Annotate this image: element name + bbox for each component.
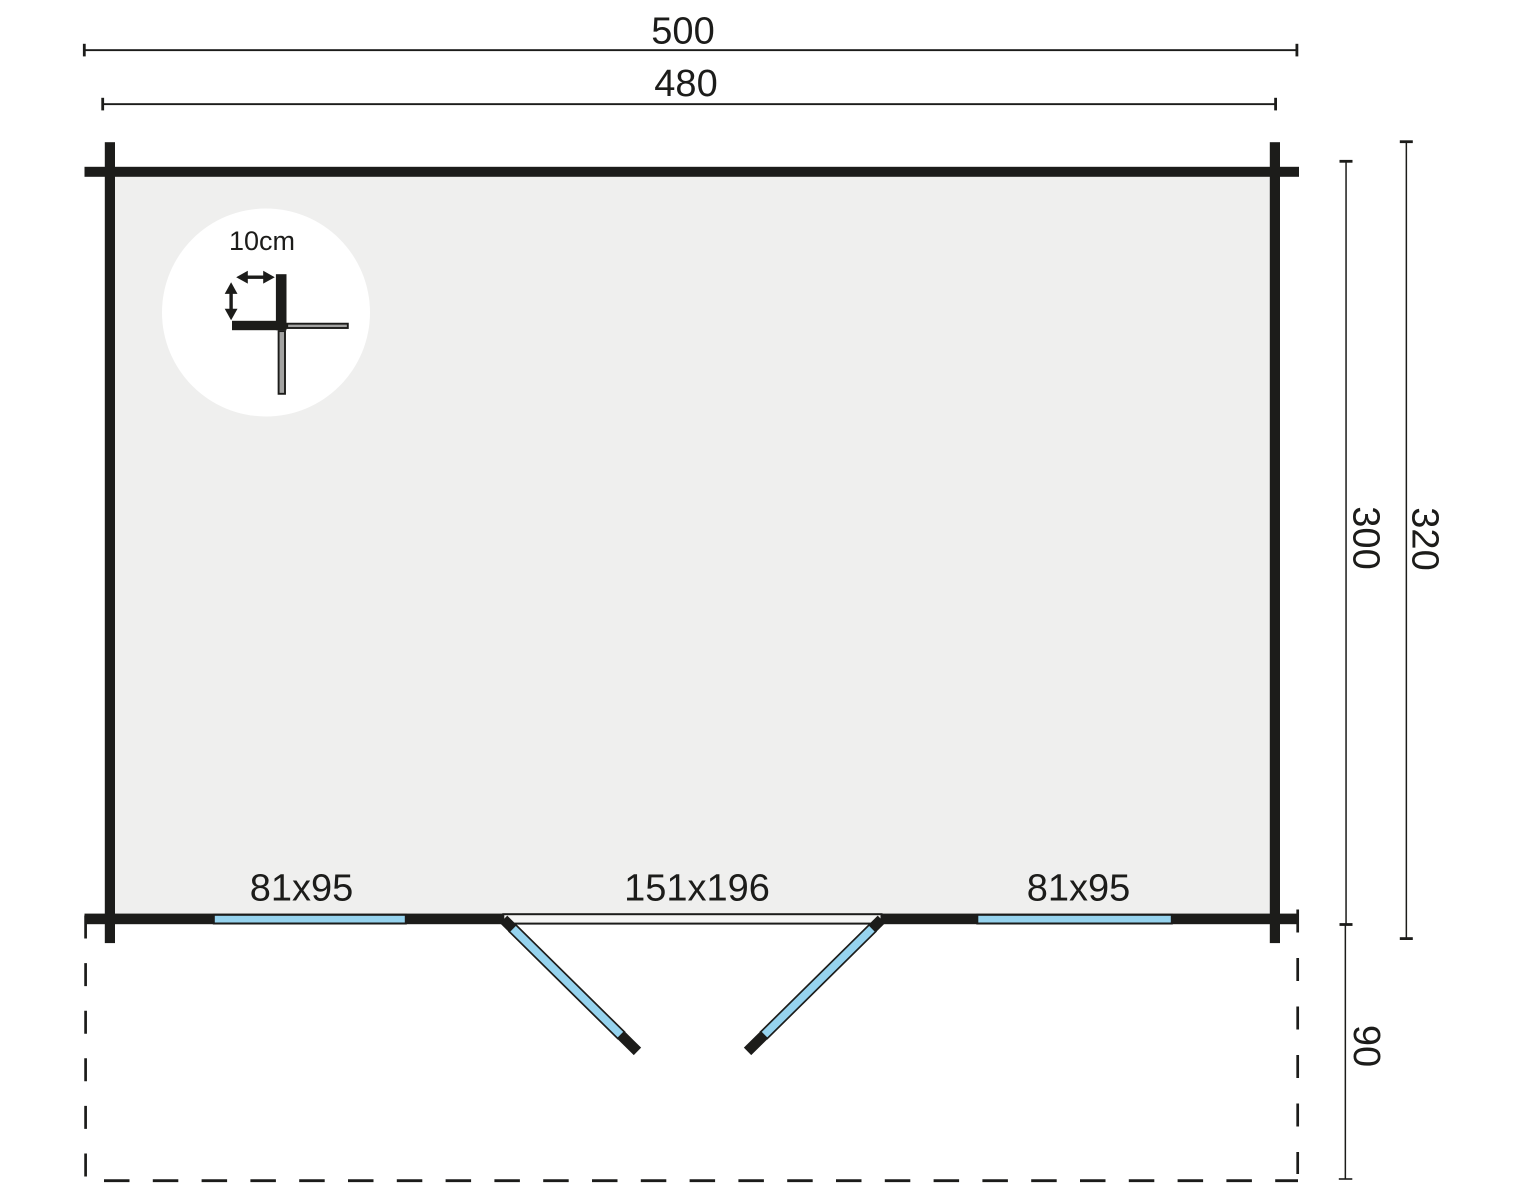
svg-text:480: 480 — [654, 63, 717, 105]
svg-text:81x95: 81x95 — [250, 868, 354, 910]
svg-text:300: 300 — [1344, 506, 1386, 569]
svg-text:151x196: 151x196 — [624, 868, 770, 910]
svg-text:81x95: 81x95 — [1027, 868, 1131, 910]
svg-text:90: 90 — [1345, 1025, 1387, 1067]
svg-text:500: 500 — [651, 11, 714, 53]
svg-text:320: 320 — [1404, 507, 1446, 570]
svg-text:10cm: 10cm — [229, 226, 295, 256]
